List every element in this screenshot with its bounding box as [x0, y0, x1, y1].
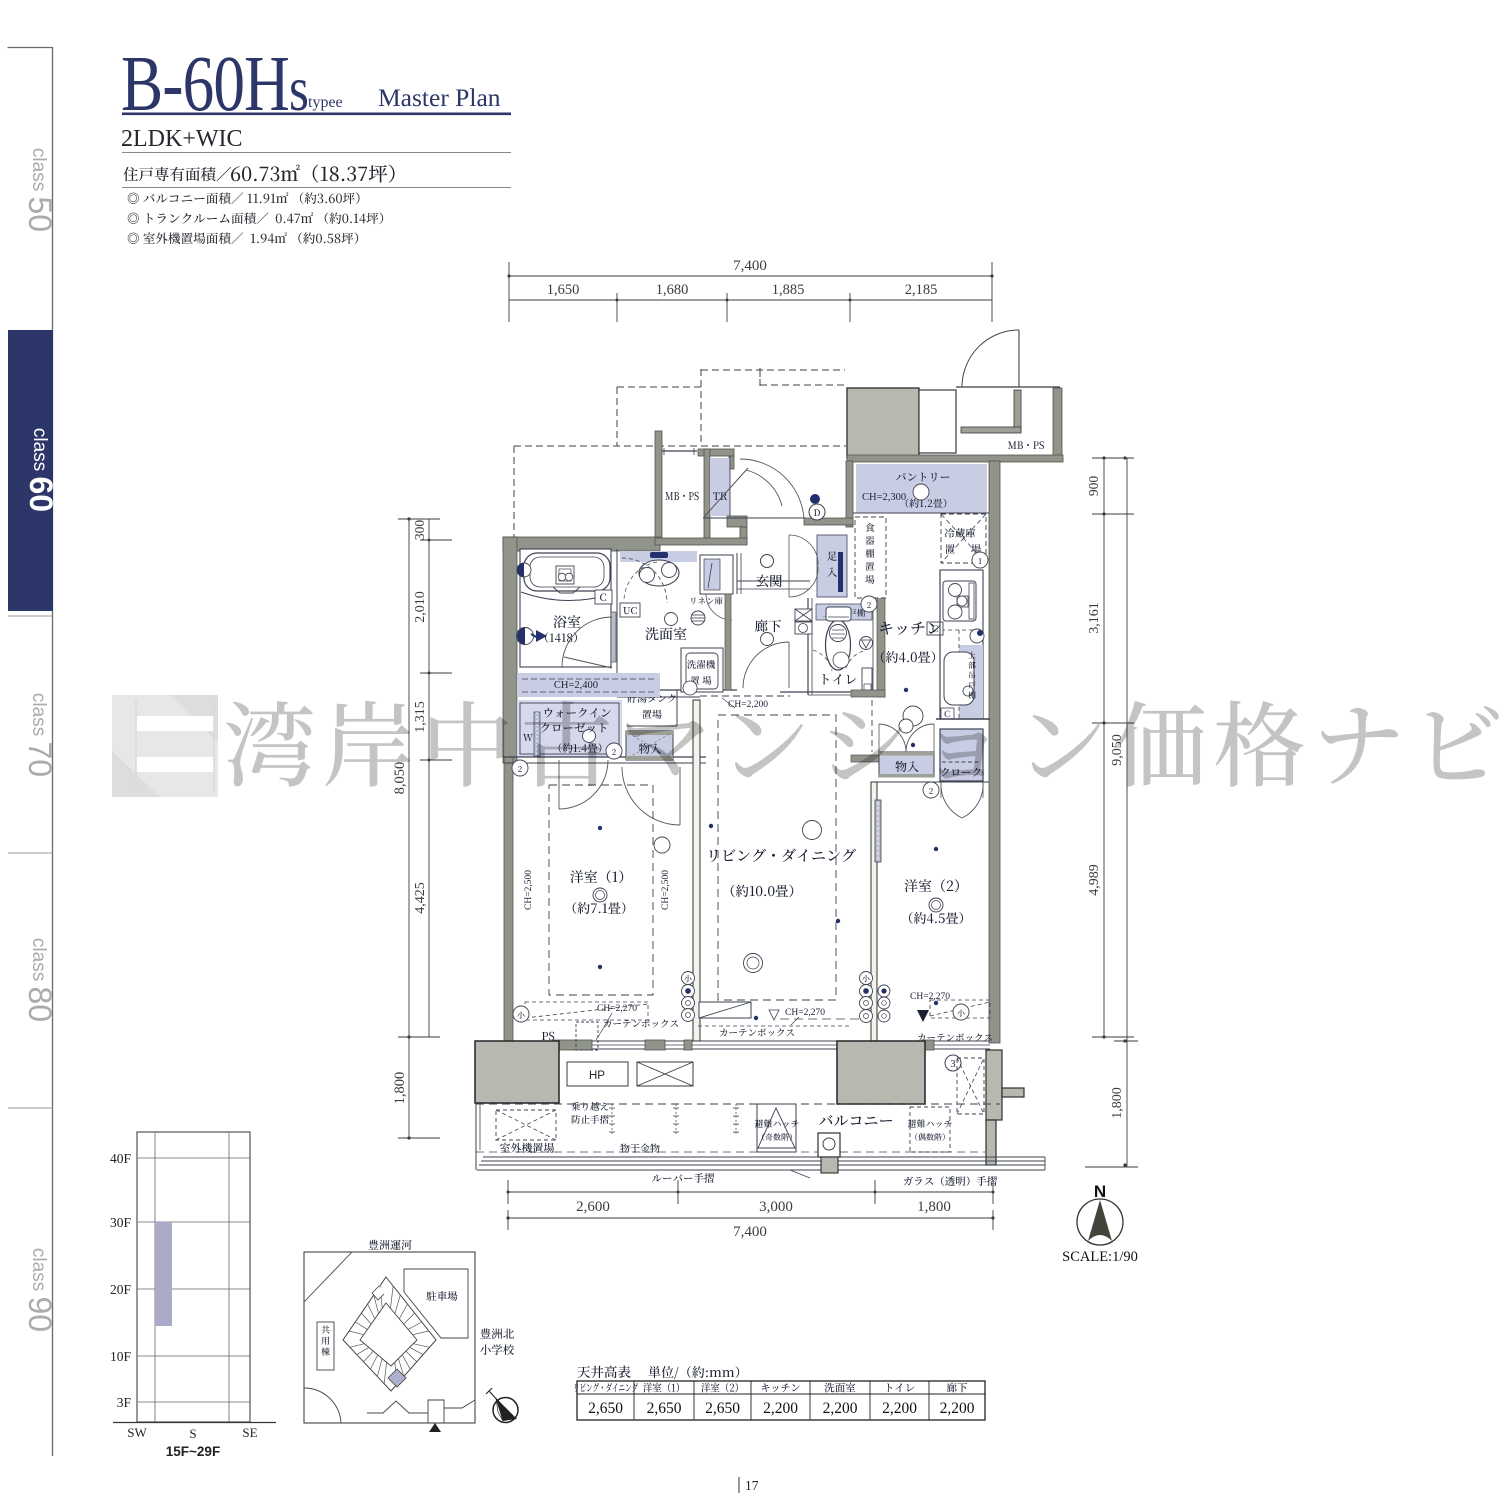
- svg-text:2,010: 2,010: [413, 591, 428, 623]
- svg-text:3,161: 3,161: [1087, 602, 1102, 634]
- svg-text:HP: HP: [589, 1070, 605, 1082]
- svg-text:1,800: 1,800: [392, 1072, 408, 1105]
- svg-text:2,200: 2,200: [823, 1400, 858, 1417]
- svg-text:15F~29F: 15F~29F: [166, 1444, 220, 1459]
- svg-text:2,200: 2,200: [763, 1400, 798, 1417]
- svg-text:1,650: 1,650: [547, 282, 580, 298]
- svg-text:3F: 3F: [117, 1395, 132, 1410]
- svg-text:CH=2,200: CH=2,200: [728, 700, 768, 710]
- svg-text:30F: 30F: [110, 1215, 132, 1230]
- svg-text:2,200: 2,200: [882, 1400, 917, 1417]
- svg-text:Master Plan: Master Plan: [378, 83, 501, 112]
- svg-text:2,650: 2,650: [647, 1400, 682, 1417]
- svg-text:20F: 20F: [110, 1282, 132, 1297]
- svg-text:7,400: 7,400: [733, 258, 767, 274]
- svg-text:CH=2,500: CH=2,500: [524, 870, 534, 910]
- svg-text:CH=2,400: CH=2,400: [554, 680, 598, 691]
- svg-text:S: S: [189, 1426, 196, 1441]
- svg-text:SCALE:1/90: SCALE:1/90: [1062, 1249, 1138, 1265]
- svg-text:typee: typee: [308, 94, 343, 111]
- svg-text:2,185: 2,185: [905, 282, 938, 298]
- svg-text:17: 17: [745, 1478, 759, 1493]
- svg-text:1,885: 1,885: [772, 282, 805, 298]
- svg-text:2,200: 2,200: [940, 1400, 975, 1417]
- svg-text:2LDK+WIC: 2LDK+WIC: [121, 126, 243, 152]
- svg-text:7,400: 7,400: [733, 1224, 767, 1240]
- svg-text:3: 3: [950, 1059, 955, 1070]
- svg-text:2,600: 2,600: [576, 1199, 610, 1215]
- svg-text:CH=2,300: CH=2,300: [862, 492, 906, 503]
- svg-text:1,800: 1,800: [1110, 1087, 1125, 1119]
- svg-text:1,800: 1,800: [917, 1199, 951, 1215]
- svg-text:900: 900: [1086, 476, 1101, 497]
- svg-text:SW: SW: [127, 1425, 147, 1440]
- svg-text:10F: 10F: [110, 1349, 132, 1364]
- svg-text:4,989: 4,989: [1087, 864, 1102, 896]
- svg-text:2,650: 2,650: [705, 1400, 740, 1417]
- svg-text:CH=2,270: CH=2,270: [597, 1004, 637, 1014]
- svg-text:1,680: 1,680: [656, 282, 689, 298]
- svg-text:40F: 40F: [110, 1151, 132, 1166]
- svg-text:CH=2,270: CH=2,270: [785, 1008, 825, 1018]
- svg-text:CH=2,270: CH=2,270: [910, 992, 950, 1002]
- svg-text:2,650: 2,650: [588, 1400, 623, 1417]
- svg-text:1,315: 1,315: [413, 701, 428, 733]
- svg-text:4,425: 4,425: [413, 882, 428, 914]
- svg-text:CH=2,500: CH=2,500: [661, 870, 671, 910]
- svg-text:N: N: [1094, 1182, 1106, 1201]
- svg-text:300: 300: [412, 520, 427, 541]
- svg-text:SE: SE: [242, 1425, 257, 1440]
- svg-text:3,000: 3,000: [759, 1199, 793, 1215]
- svg-text:8,050: 8,050: [392, 762, 408, 795]
